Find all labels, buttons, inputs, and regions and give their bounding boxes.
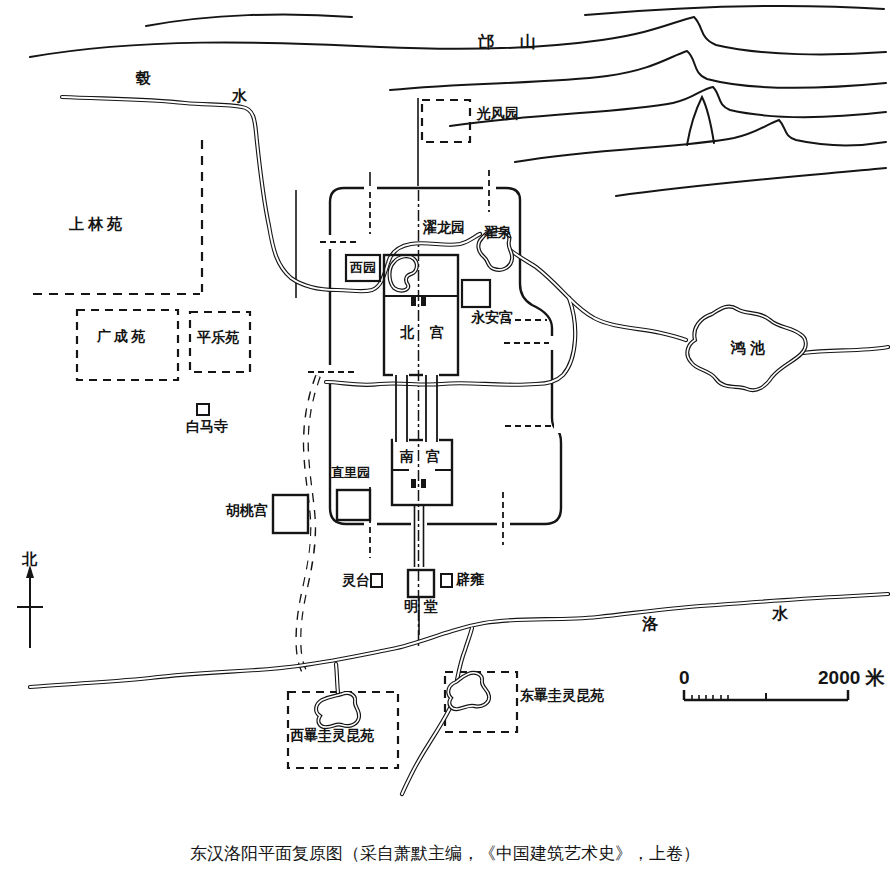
hutaogong-box [273,495,308,533]
label-zhiliyuan: 直里园 [331,466,370,479]
label-hutaogong: 胡桃宫 [226,503,268,517]
baimasi-symbol [197,404,209,415]
label-gu-river-char2: 水 [232,88,247,103]
label-xi-bigui: 西罼圭灵昆苑 [290,728,374,742]
label-beigong: 北宫 [400,325,460,339]
map-linework [0,0,890,874]
label-mingtang: 明堂 [404,599,444,613]
lingtai-symbol [371,574,382,587]
map-caption: 东汉洛阳平面复原图（采自萧默主编，《中国建筑艺术史》，上卷） [190,842,700,865]
yonganggong-box [462,280,490,307]
label-yonganggong: 永安宫 [471,310,513,324]
guangchengyuan-box [77,310,178,380]
guangfengyuan-box [422,100,470,142]
label-biyong: 辟雍 [456,572,484,586]
label-lingtai: 灵台 [342,573,370,587]
label-baimasi: 白马寺 [186,419,228,433]
label-guangfengyuan: 光风园 [477,106,519,120]
label-nangong: 南宫 [400,449,452,463]
biyong-symbol [441,574,452,587]
label-pingleyuan: 平乐苑 [197,330,239,344]
label-luo-river-char1: 洛 [642,616,658,632]
north-arrow [17,565,43,648]
label-xiyuan: 西园 [350,261,376,274]
label-luo-river-char2: 水 [772,606,788,622]
west-park-pond [316,693,359,727]
label-shanglinyuan: 上林苑 [69,216,126,231]
label-gu-river-char1: 毂 [136,70,151,85]
label-zhaiquan: 翟泉 [484,225,512,239]
label-hongchi: 鸿池 [731,340,769,355]
scale-max-label: 2000 米 [818,668,885,687]
east-park-pond [448,673,489,709]
scale-bar [684,690,848,700]
zhiliyuan-box [337,490,370,520]
mingtang-box [408,570,434,597]
inner-stream [326,298,575,385]
label-mang-mountain: 邙山 [478,34,562,50]
han-luoyang-map: 邙山 毂 水 光风园 上林苑 濯龙园 翟泉 西园 北宫 永安宫 广成苑 平乐苑 … [0,0,890,874]
scale-zero-label: 0 [679,668,690,687]
label-zhuolongyuan: 濯龙园 [423,220,465,234]
label-guangchengyuan: 广成苑 [97,329,148,343]
label-dong-bigui: 东罼圭灵昆苑 [520,688,604,702]
label-north: 北 [22,551,37,566]
